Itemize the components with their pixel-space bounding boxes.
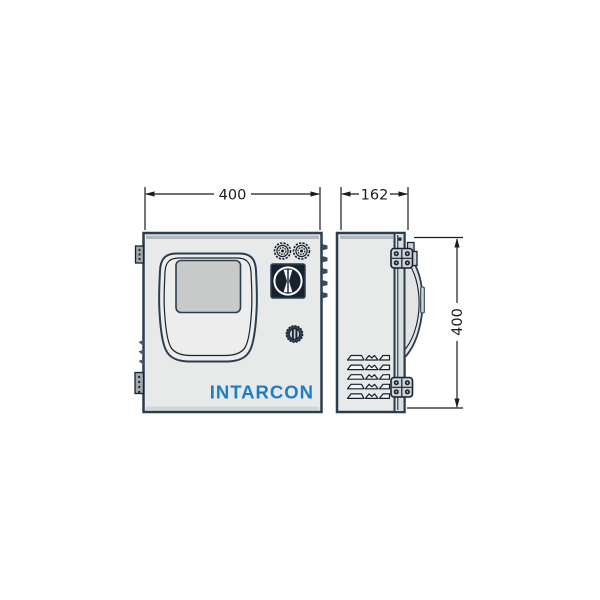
technical-drawing-page: 400 162 400 bbox=[0, 0, 600, 600]
display-cover bbox=[159, 254, 257, 362]
screw-icon bbox=[138, 253, 140, 255]
side-depth-value: 162 bbox=[361, 188, 389, 204]
dimension-side-depth: 162 bbox=[341, 187, 408, 230]
edge-tab-icon bbox=[139, 359, 144, 365]
lid-edge-top bbox=[340, 236, 393, 240]
arrowhead-down-icon bbox=[454, 399, 459, 409]
side-hinge-top bbox=[391, 249, 413, 269]
louver-row-icon bbox=[348, 384, 390, 389]
rotary-switch bbox=[271, 264, 305, 298]
louver-row-icon bbox=[348, 394, 390, 399]
screw-icon bbox=[138, 391, 140, 393]
door-lock-icon bbox=[286, 326, 302, 342]
side-view bbox=[337, 233, 424, 412]
screw-icon bbox=[138, 381, 140, 383]
lid-edge-top bbox=[146, 236, 319, 240]
side-hinge-bottom bbox=[391, 378, 413, 398]
arrowhead-right-icon bbox=[311, 191, 321, 196]
edge-tab-icon bbox=[139, 340, 144, 346]
enclosure-drawing: 400 162 400 bbox=[0, 0, 600, 600]
cable-gland-icon bbox=[294, 243, 310, 259]
side-height-value: 400 bbox=[450, 308, 466, 336]
front-width-value: 400 bbox=[219, 188, 247, 204]
arrowhead-up-icon bbox=[454, 238, 459, 248]
front-left-hinges bbox=[135, 246, 144, 394]
edge-tab-icon bbox=[322, 256, 328, 263]
screw-icon bbox=[138, 249, 140, 251]
front-right-tabs bbox=[322, 244, 328, 299]
edge-tab-icon bbox=[322, 244, 328, 251]
arrowhead-left-icon bbox=[145, 191, 155, 196]
screw-icon bbox=[398, 238, 401, 241]
lid-edge-bottom bbox=[146, 407, 319, 411]
screw-icon bbox=[138, 258, 140, 260]
louver-row-icon bbox=[348, 365, 390, 370]
edge-tab-icon bbox=[139, 350, 144, 356]
edge-tab-icon bbox=[322, 280, 328, 287]
screw-icon bbox=[138, 376, 140, 378]
louver-row-icon bbox=[348, 375, 390, 380]
front-view: INTARCON bbox=[135, 233, 328, 412]
arrowhead-left-icon bbox=[341, 191, 351, 196]
edge-tab-icon bbox=[322, 268, 328, 275]
screw-icon bbox=[138, 386, 140, 388]
display-window bbox=[176, 261, 241, 313]
edge-tab-icon bbox=[322, 292, 328, 299]
dimension-front-width: 400 bbox=[145, 187, 320, 230]
arrowhead-right-icon bbox=[399, 191, 409, 196]
bulge-apex-flat bbox=[421, 287, 425, 313]
louver-row-icon bbox=[348, 356, 390, 361]
brand-logo: INTARCON bbox=[210, 382, 314, 403]
cable-gland-icon bbox=[275, 243, 291, 259]
